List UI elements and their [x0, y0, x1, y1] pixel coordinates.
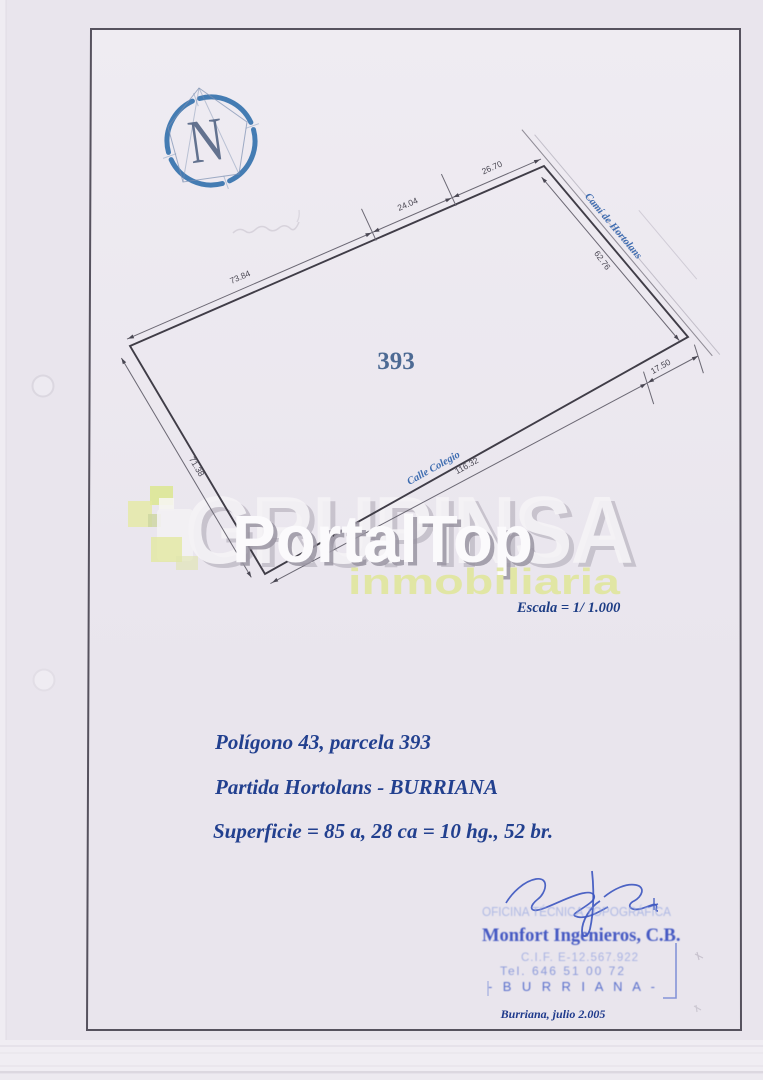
svg-text:Monfort Ingenieros, C.B.: Monfort Ingenieros, C.B.: [482, 926, 681, 946]
svg-text:OFICINA TÉCNICA TOPOGRÁFICA: OFICINA TÉCNICA TOPOGRÁFICA: [482, 904, 671, 919]
svg-text:Polígono 43, parcela 393: Polígono 43, parcela 393: [214, 730, 431, 754]
svg-text:inmobiliaria: inmobiliaria: [348, 561, 621, 602]
svg-text:- B U R R I A N A -: - B U R R I A N A -: [488, 979, 660, 994]
svg-text:Superficie = 85 a, 28 ca = 10: Superficie = 85 a, 28 ca = 10 hg., 52 br…: [213, 819, 553, 843]
svg-text:Escala = 1/ 1.000: Escala = 1/ 1.000: [516, 600, 620, 616]
svg-text:C.I.F. E-12.567.922: C.I.F. E-12.567.922: [521, 952, 639, 964]
svg-text:Burriana, julio 2.005: Burriana, julio 2.005: [500, 1007, 606, 1021]
svg-text:393: 393: [377, 348, 415, 375]
svg-text:Tel. 646 51 00 72: Tel. 646 51 00 72: [500, 964, 626, 978]
svg-text:Partida Hortolans - BURRIANA: Partida Hortolans - BURRIANA: [214, 775, 498, 799]
